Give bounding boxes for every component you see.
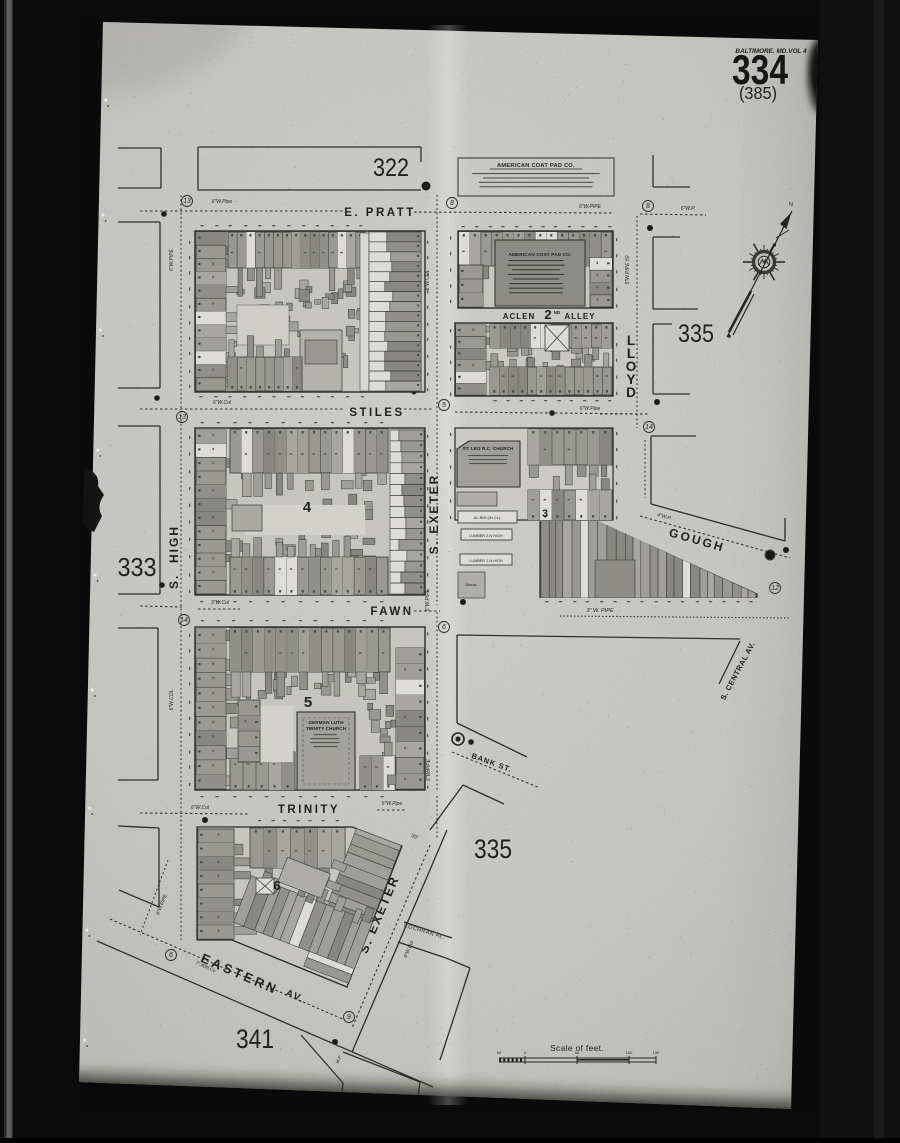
- svg-text:3″ W. PIPE: 3″ W. PIPE: [586, 608, 613, 614]
- svg-text:GERMAN LUTH: GERMAN LUTH: [308, 720, 344, 725]
- svg-text:LLOYD: LLOYD: [626, 333, 637, 400]
- svg-text:6: 6: [442, 624, 446, 631]
- svg-text:333: 333: [118, 552, 157, 582]
- svg-text:2: 2: [544, 307, 551, 322]
- svg-text:S. HIGH: S. HIGH: [167, 525, 181, 589]
- svg-text:5: 5: [442, 402, 446, 409]
- svg-text:12: 12: [771, 585, 779, 592]
- svg-text:5″W.PIPE 50: 5″W.PIPE 50: [625, 255, 631, 284]
- svg-text:14: 14: [645, 424, 653, 431]
- svg-text:6″W.P.: 6″W.P.: [681, 206, 696, 212]
- svg-text:6″W.Pipe: 6″W.Pipe: [212, 199, 233, 205]
- svg-text:STILES: STILES: [349, 407, 404, 419]
- svg-text:6″W.COL: 6″W.COL: [169, 689, 175, 710]
- svg-text:S. EXETER: S. EXETER: [427, 474, 441, 555]
- svg-text:AMERICAN COAT PAD CO.: AMERICAN COAT PAD CO.: [497, 163, 575, 169]
- svg-text:6″W.Col: 6″W.Col: [213, 400, 232, 406]
- svg-text:3″W.Col: 3″W.Col: [211, 600, 230, 606]
- svg-text:13: 13: [178, 414, 186, 421]
- svg-text:6″W.COL: 6″W.COL: [425, 269, 431, 290]
- svg-text:14: 14: [180, 617, 188, 624]
- svg-text:50: 50: [497, 1050, 502, 1055]
- svg-text:LUMBER 2-N HIGH: LUMBER 2-N HIGH: [469, 559, 503, 563]
- svg-text:50: 50: [575, 1050, 580, 1055]
- svg-text:8: 8: [450, 200, 454, 207]
- svg-text:335: 335: [678, 320, 714, 348]
- svg-text:6″W.Pipe: 6″W.Pipe: [580, 406, 601, 412]
- svg-text:3: 3: [542, 508, 548, 520]
- svg-text:AMERICAN COAT PAD CO.: AMERICAN COAT PAD CO.: [509, 252, 572, 257]
- svg-text:8: 8: [646, 203, 650, 210]
- svg-text:341: 341: [236, 1024, 274, 1054]
- svg-text:N: N: [789, 202, 793, 208]
- svg-text:100: 100: [626, 1050, 633, 1055]
- svg-text:TRINITY CHURCH: TRINITY CHURCH: [306, 726, 347, 731]
- svg-text:ACLEN: ACLEN: [503, 312, 536, 321]
- svg-text:9: 9: [347, 1014, 351, 1021]
- svg-text:ALLEY: ALLEY: [564, 312, 595, 321]
- svg-text:(385): (385): [739, 83, 777, 103]
- svg-text:6: 6: [273, 878, 280, 893]
- svg-text:ND: ND: [554, 310, 561, 315]
- svg-text:6″W.PIPE: 6″W.PIPE: [426, 758, 432, 781]
- svg-text:AL.BIN (IN CL): AL.BIN (IN CL): [474, 515, 501, 520]
- svg-text:FAWN: FAWN: [370, 606, 413, 618]
- svg-text:6″W.Col: 6″W.Col: [191, 805, 210, 811]
- svg-text:322: 322: [373, 154, 409, 182]
- svg-text:Sheds: Sheds: [465, 582, 476, 587]
- svg-text:4: 4: [303, 499, 312, 516]
- svg-text:6″W.Pipe: 6″W.Pipe: [382, 801, 403, 807]
- svg-text:13: 13: [183, 198, 191, 205]
- svg-text:5: 5: [304, 694, 312, 711]
- svg-text:6″W.PIPE: 6″W.PIPE: [579, 204, 602, 210]
- svg-text:LUMBER 2-N HIGH: LUMBER 2-N HIGH: [469, 534, 503, 538]
- svg-text:6: 6: [169, 952, 173, 959]
- svg-text:335: 335: [474, 834, 512, 864]
- svg-text:TRINITY: TRINITY: [278, 804, 340, 816]
- svg-text:ST. LEO R.C. CHURCH: ST. LEO R.C. CHURCH: [463, 446, 514, 451]
- svg-text:E. PRATT: E. PRATT: [344, 207, 416, 219]
- svg-text:6″W.PIPE: 6″W.PIPE: [169, 248, 175, 271]
- svg-text:150: 150: [653, 1050, 660, 1055]
